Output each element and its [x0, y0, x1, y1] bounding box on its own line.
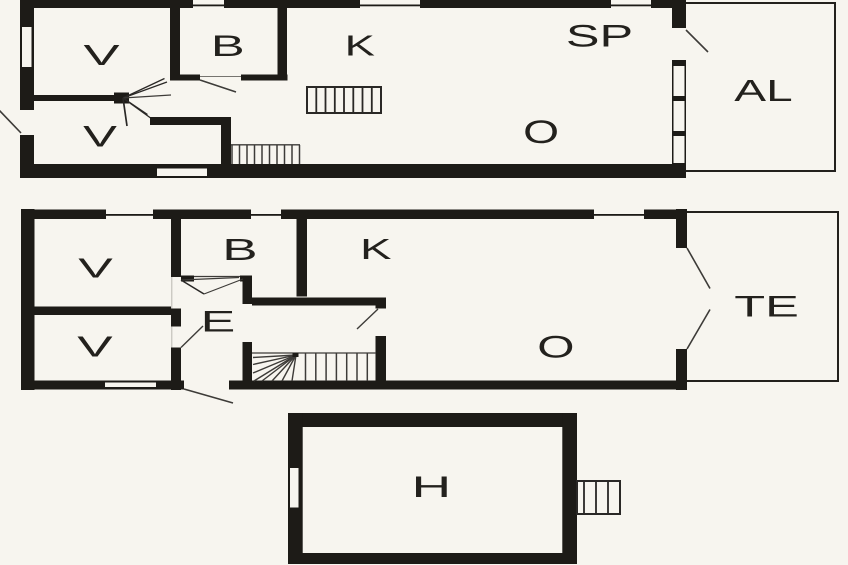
svg-text:B: B	[222, 233, 257, 267]
svg-text:B: B	[211, 30, 245, 63]
svg-text:E: E	[201, 305, 236, 338]
svg-text:TE: TE	[734, 290, 799, 323]
svg-text:K: K	[345, 31, 375, 62]
svg-text:AL: AL	[734, 74, 792, 108]
svg-text:H: H	[412, 471, 452, 504]
svg-text:V: V	[77, 331, 113, 363]
svg-text:O: O	[523, 115, 559, 151]
svg-text:V: V	[83, 121, 117, 154]
svg-text:V: V	[78, 252, 113, 284]
svg-text:O: O	[537, 329, 574, 365]
svg-text:K: K	[360, 234, 392, 266]
svg-text:V: V	[84, 40, 120, 72]
svg-text:SP: SP	[566, 18, 633, 53]
